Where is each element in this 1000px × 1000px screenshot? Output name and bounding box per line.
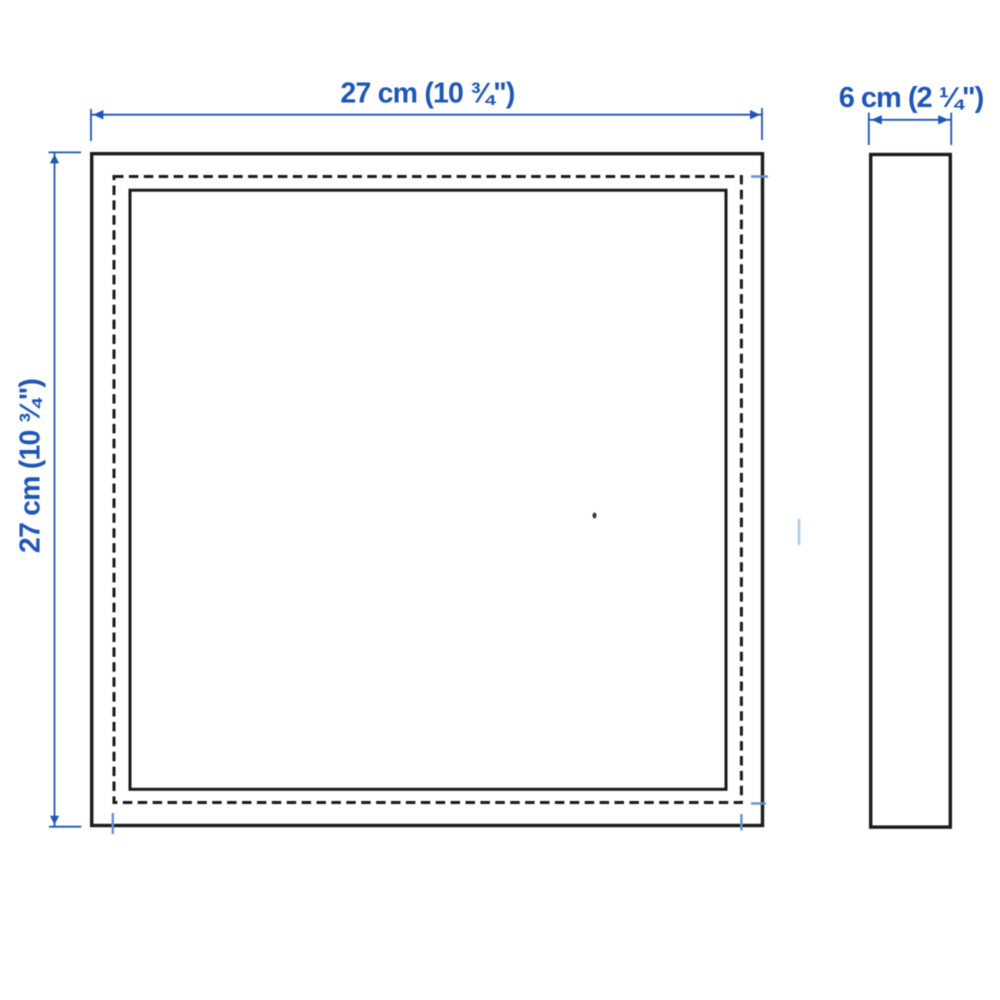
svg-text:6 cm (2 ¼"): 6 cm (2 ¼") <box>839 82 984 114</box>
svg-text:27 cm (10 ¾"): 27 cm (10 ¾") <box>340 78 515 110</box>
svg-text:27 cm (10 ¾"): 27 cm (10 ¾") <box>15 379 47 554</box>
